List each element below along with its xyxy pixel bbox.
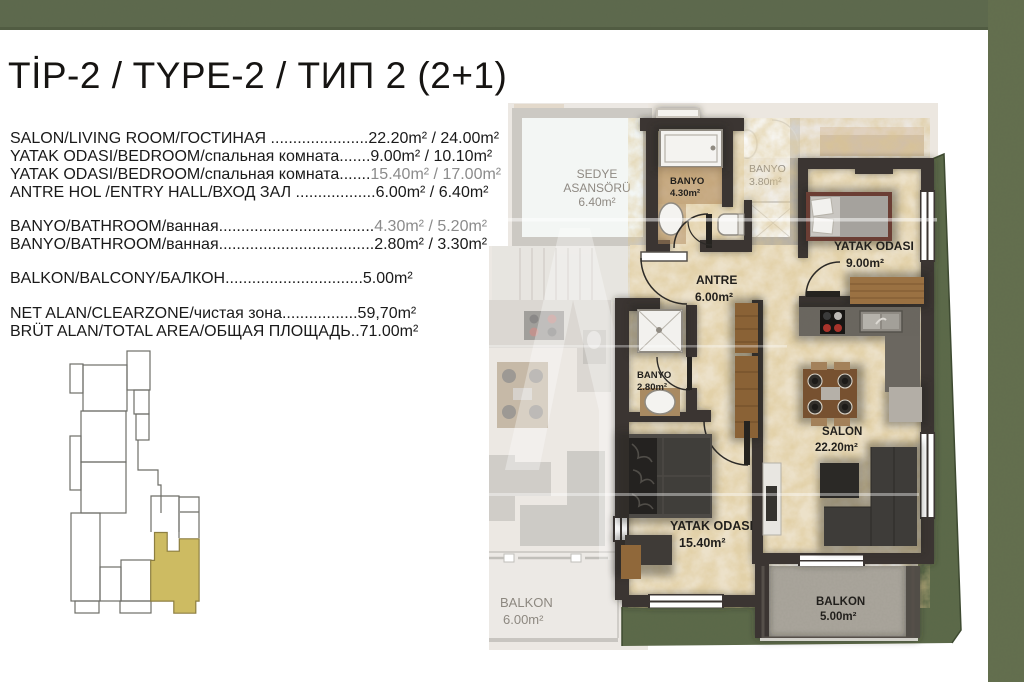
svg-text:TİP-2 / TYPE-2 / ТИП 2 (2+1): TİP-2 / TYPE-2 / ТИП 2 (2+1) <box>8 55 507 96</box>
svg-text:SEDYE: SEDYE <box>577 167 618 181</box>
svg-text:BANYO: BANYO <box>637 370 671 381</box>
svg-text:YATAK ODASI/BEDROOM/спальная к: YATAK ODASI/BEDROOM/спальная комната....… <box>10 166 502 183</box>
svg-text:6.00m²: 6.00m² <box>695 290 733 304</box>
svg-text:BRÜT ALAN/TOTAL AREA/ОБЩАЯ ПЛО: BRÜT ALAN/TOTAL AREA/ОБЩАЯ ПЛОЩАДЬ..71.0… <box>10 322 419 340</box>
svg-text:SALON/LIVING ROOM/ГОСТИНАЯ ...: SALON/LIVING ROOM/ГОСТИНАЯ .............… <box>10 130 500 147</box>
svg-text:6.40m²: 6.40m² <box>578 195 615 209</box>
svg-text:YATAK ODASI: YATAK ODASI <box>670 519 753 533</box>
svg-text:YATAK ODASI: YATAK ODASI <box>834 239 914 253</box>
svg-text:ANTRE HOL /ENTRY HALL/ВХОД ЗАЛ: ANTRE HOL /ENTRY HALL/ВХОД ЗАЛ .........… <box>10 184 489 201</box>
svg-text:BALKON/BALCONY/БАЛКОН.........: BALKON/BALCONY/БАЛКОН...................… <box>10 270 413 287</box>
svg-text:BANYO/BATHROOM/ванная.........: BANYO/BATHROOM/ванная...................… <box>10 236 488 253</box>
svg-text:NET ALAN/CLEARZONE/чистая зона: NET ALAN/CLEARZONE/чистая зона..........… <box>10 305 417 322</box>
svg-text:BANYO: BANYO <box>670 176 704 187</box>
svg-text:BALKON: BALKON <box>816 596 865 608</box>
svg-text:BANYO/BATHROOM/ванная.........: BANYO/BATHROOM/ванная...................… <box>10 218 488 235</box>
svg-text:15.40m²: 15.40m² <box>679 536 726 550</box>
svg-text:BALKON: BALKON <box>500 595 553 610</box>
svg-text:YATAK ODASI/BEDROOM/спальная к: YATAK ODASI/BEDROOM/спальная комната....… <box>10 148 493 165</box>
svg-text:22.20m²: 22.20m² <box>815 442 858 454</box>
svg-text:4.30m²: 4.30m² <box>670 188 700 199</box>
svg-text:2.80m²: 2.80m² <box>637 382 667 393</box>
svg-text:ANTRE: ANTRE <box>696 273 737 287</box>
svg-text:5.00m²: 5.00m² <box>820 611 857 623</box>
svg-text:6.00m²: 6.00m² <box>503 612 544 627</box>
svg-text:9.00m²: 9.00m² <box>846 256 884 270</box>
svg-text:SALON: SALON <box>822 426 862 438</box>
svg-text:ASANSÖRÜ: ASANSÖRÜ <box>563 181 630 195</box>
